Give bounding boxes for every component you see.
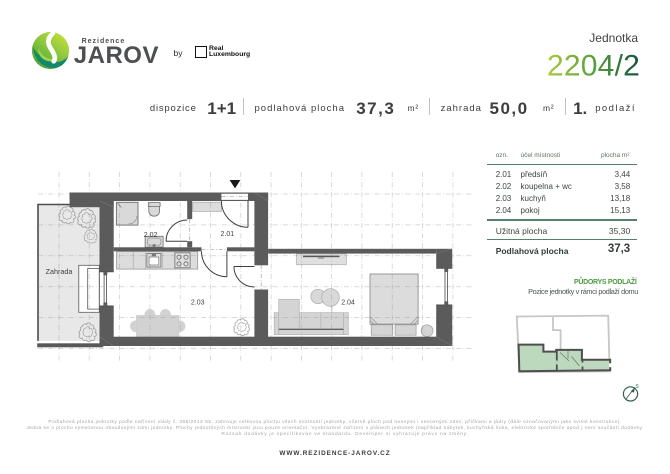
svg-text:Zahrada: Zahrada	[46, 267, 73, 276]
svg-text:2204/2: 2204/2	[547, 49, 640, 80]
svg-text:2.02: 2.02	[144, 232, 158, 239]
svg-text:S: S	[635, 384, 639, 390]
svg-text:2.01: 2.01	[220, 231, 234, 238]
svg-text:2.03: 2.03	[191, 299, 205, 306]
svg-text:2.04: 2.04	[341, 299, 355, 306]
